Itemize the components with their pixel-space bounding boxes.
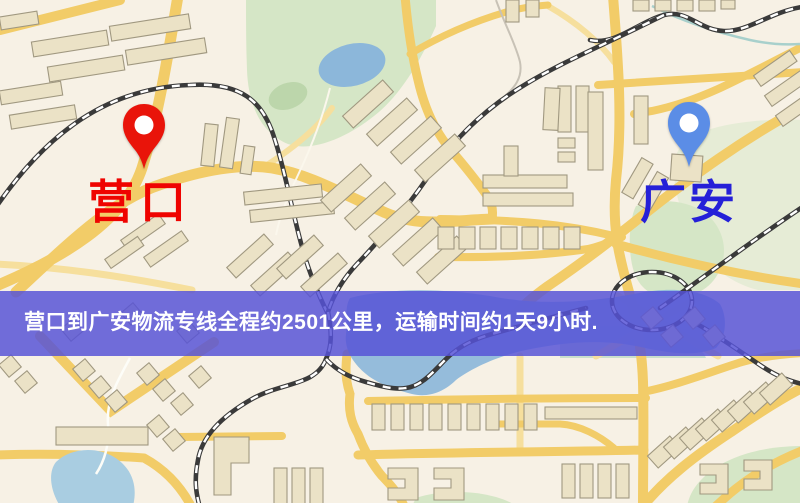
route-info-banner: 营口到广安物流专线全程约2501公里，运输时间约1天9小时. <box>0 291 800 356</box>
origin-marker[interactable] <box>121 103 167 175</box>
destination-marker[interactable] <box>666 101 712 173</box>
map-screenshot: 营口 广安 营口到广安物流专线全程约2501公里，运输时间约1天9小时. <box>0 0 800 503</box>
map-background <box>0 0 800 503</box>
route-info-text: 营口到广安物流专线全程约2501公里，运输时间约1天9小时. <box>24 306 598 336</box>
red-map-pin-icon[interactable] <box>121 103 167 175</box>
origin-label: 营口 <box>88 179 192 225</box>
blue-map-pin-icon[interactable] <box>666 101 712 173</box>
destination-label: 广安 <box>640 179 738 225</box>
